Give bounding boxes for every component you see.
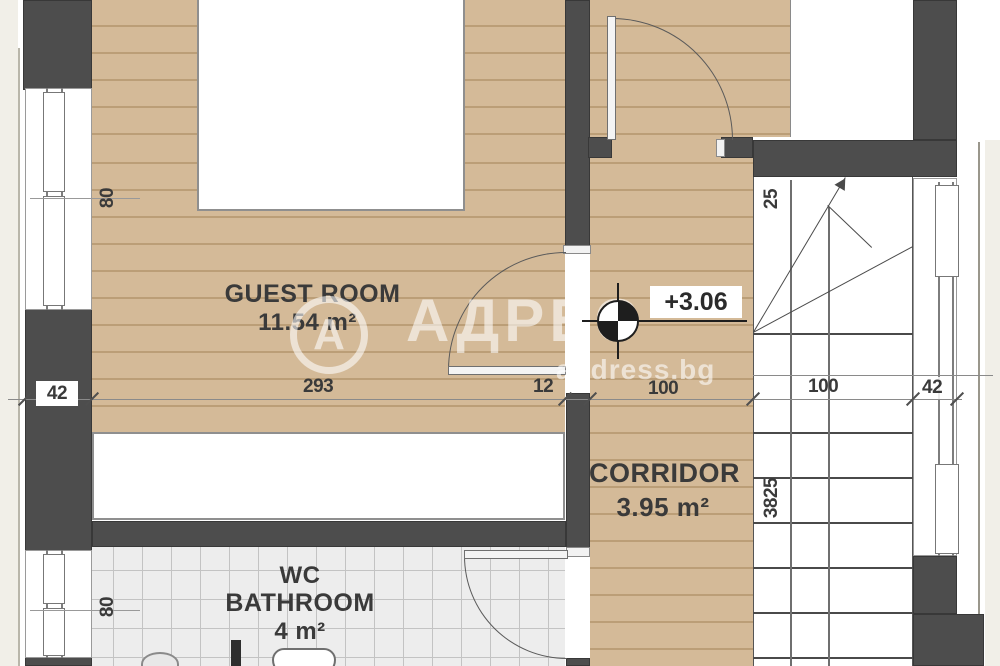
bathroom-label: BATHROOM xyxy=(210,589,390,618)
dimension-tie-line xyxy=(30,610,140,611)
guest-room-door-leaf xyxy=(448,366,566,375)
door-jamb xyxy=(563,245,591,254)
watermark-logo: А xyxy=(290,296,368,374)
corridor-label: CORRIDOR xyxy=(589,458,739,489)
exterior-left-strip xyxy=(0,0,18,666)
dim-left-wall: 42 xyxy=(36,381,78,406)
dimension-line xyxy=(8,399,962,400)
stair-tread xyxy=(753,522,913,524)
staircase xyxy=(753,177,913,666)
dim-guest-width: 293 xyxy=(303,376,333,398)
level-value: +3.06 xyxy=(650,286,742,318)
dim-stair-width: 100 xyxy=(808,376,838,398)
bathroom-door-leaf xyxy=(464,550,568,559)
stair-tread xyxy=(753,333,913,335)
wall xyxy=(23,0,92,90)
dim-partition: 12 xyxy=(533,376,553,398)
dim-window-top: 80 xyxy=(97,188,119,208)
level-marker-icon xyxy=(597,300,639,342)
toilet xyxy=(272,648,336,666)
plot-boundary-left xyxy=(18,48,20,666)
window-sash xyxy=(43,92,65,192)
stair-stringer xyxy=(828,207,830,666)
wall xyxy=(566,393,590,557)
dimension-extension-line xyxy=(753,375,993,376)
window-sash xyxy=(43,196,65,306)
wall xyxy=(92,521,566,547)
corridor-floor xyxy=(590,137,753,666)
bed xyxy=(197,0,465,211)
bathroom-label-wc: WC xyxy=(210,562,390,590)
dimension-tie-line xyxy=(30,198,140,199)
wall xyxy=(565,0,590,247)
exterior-right-strip xyxy=(985,140,1000,666)
dim-stair-run: 3825 xyxy=(761,478,783,518)
wall xyxy=(913,0,957,140)
window-sash xyxy=(935,185,959,277)
wall xyxy=(721,137,753,158)
wall xyxy=(25,308,92,552)
window-sash xyxy=(935,464,959,554)
bathroom-area: 4 m² xyxy=(210,618,390,646)
floor-plan: GUEST ROOM 11.54 m² CORRIDOR 3.95 m² WC … xyxy=(0,0,1000,666)
wall xyxy=(913,614,984,666)
wall xyxy=(588,137,612,158)
plot-boundary-right xyxy=(978,142,980,666)
stair-tread xyxy=(753,567,913,569)
top-door-leaf xyxy=(607,16,616,140)
stair-stringer xyxy=(790,180,792,666)
window-sash xyxy=(43,554,65,604)
wall xyxy=(566,658,590,666)
wall xyxy=(753,140,957,177)
stair-tread xyxy=(753,432,913,434)
wall xyxy=(913,556,957,614)
door-jamb xyxy=(716,139,725,157)
stair-tread xyxy=(753,612,913,614)
dim-window-bottom: 80 xyxy=(97,597,119,617)
dim-tread: 25 xyxy=(761,189,783,209)
dim-right-wall: 42 xyxy=(920,377,944,399)
door-jamb xyxy=(566,547,590,557)
wardrobe xyxy=(92,432,565,520)
window-sash xyxy=(43,608,65,656)
stairwell-void xyxy=(790,0,914,137)
watermark-site: address.bg xyxy=(556,354,715,386)
corridor-area: 3.95 m² xyxy=(589,492,737,523)
stair-tread xyxy=(753,657,913,659)
